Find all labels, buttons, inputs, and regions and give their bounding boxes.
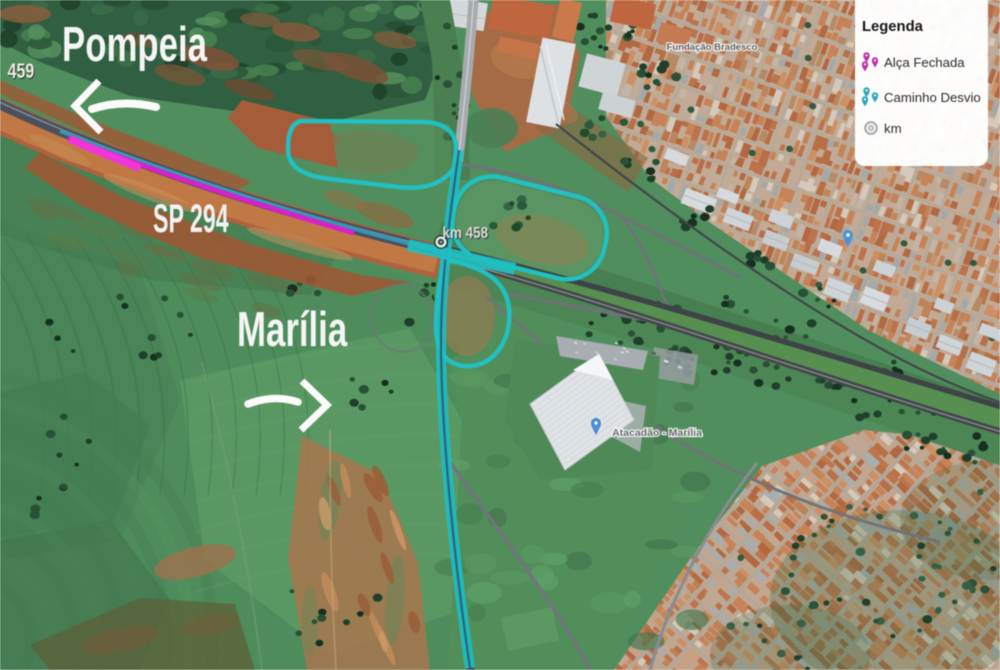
svg-text:Marília: Marília [237,303,347,357]
svg-text:SP 294: SP 294 [153,195,229,240]
svg-text:km 458: km 458 [443,225,489,242]
svg-text:459: 459 [8,59,35,83]
svg-text:Caminho Desvio: Caminho Desvio [884,90,981,105]
svg-text:Pompeia: Pompeia [62,18,207,72]
svg-text:Fundação Bradesco: Fundação Bradesco [667,42,758,53]
svg-text:Alça Fechada: Alça Fechada [884,55,965,70]
svg-text:Legenda: Legenda [862,19,924,35]
svg-text:km: km [884,121,902,136]
svg-text:Atacadão - Marília: Atacadão - Marília [612,427,702,439]
